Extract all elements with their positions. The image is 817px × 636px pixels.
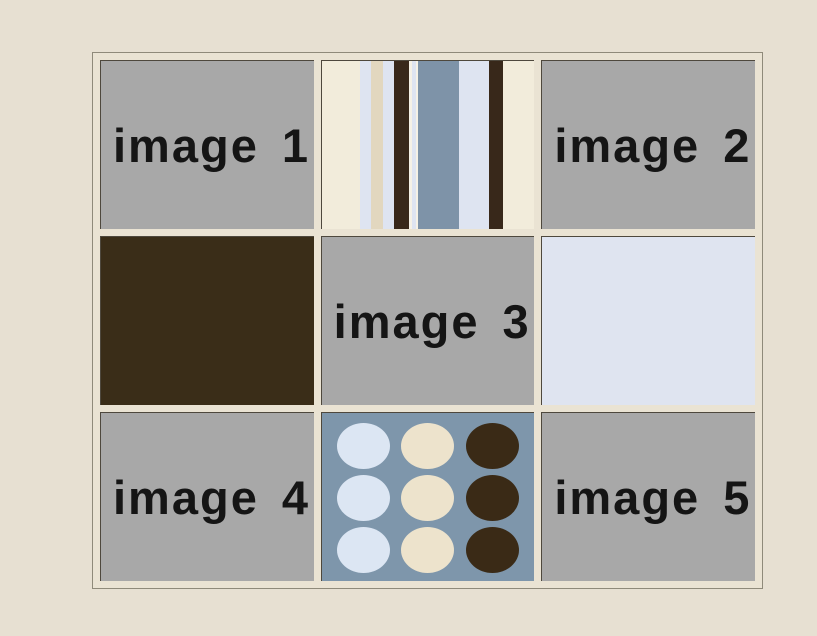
stripe xyxy=(371,61,383,229)
dot xyxy=(337,527,390,573)
grid-cell-brown-swatch[interactable] xyxy=(100,236,314,405)
page-background: { "page": { "background": "#E7E0D2" }, "… xyxy=(0,0,817,636)
grid-cell-image-3[interactable]: image 3 xyxy=(321,236,535,405)
image-1-label: image 1 xyxy=(101,122,310,169)
dot-pattern xyxy=(322,413,535,581)
image-4-label: image 4 xyxy=(101,474,310,521)
stripe xyxy=(322,61,360,229)
stripe xyxy=(394,61,409,229)
grid-cell-image-5[interactable]: image 5 xyxy=(541,412,755,581)
image-collage-grid: image 1 image 2 image 3 image 4 image 5 xyxy=(92,52,763,589)
grid-cell-stripe-swatch[interactable] xyxy=(321,60,535,229)
stripe xyxy=(503,61,534,229)
dot xyxy=(337,475,390,521)
stripe xyxy=(489,61,503,229)
grid-cell-image-1[interactable]: image 1 xyxy=(100,60,314,229)
stripe xyxy=(360,61,371,229)
dot xyxy=(337,423,390,469)
dot xyxy=(401,423,454,469)
stripe xyxy=(459,61,488,229)
stripe xyxy=(383,61,393,229)
stripe-pattern xyxy=(322,61,535,229)
dot xyxy=(401,527,454,573)
grid-cell-pale-blue-swatch[interactable] xyxy=(541,236,755,405)
dot xyxy=(466,423,519,469)
image-2-label: image 2 xyxy=(542,122,751,169)
dot xyxy=(466,527,519,573)
grid-cell-image-4[interactable]: image 4 xyxy=(100,412,314,581)
image-5-label: image 5 xyxy=(542,474,751,521)
image-3-label: image 3 xyxy=(322,298,531,345)
grid-cell-image-2[interactable]: image 2 xyxy=(541,60,755,229)
dot xyxy=(466,475,519,521)
stripe xyxy=(418,61,460,229)
dot xyxy=(401,475,454,521)
grid-cell-dot-swatch[interactable] xyxy=(321,412,535,581)
